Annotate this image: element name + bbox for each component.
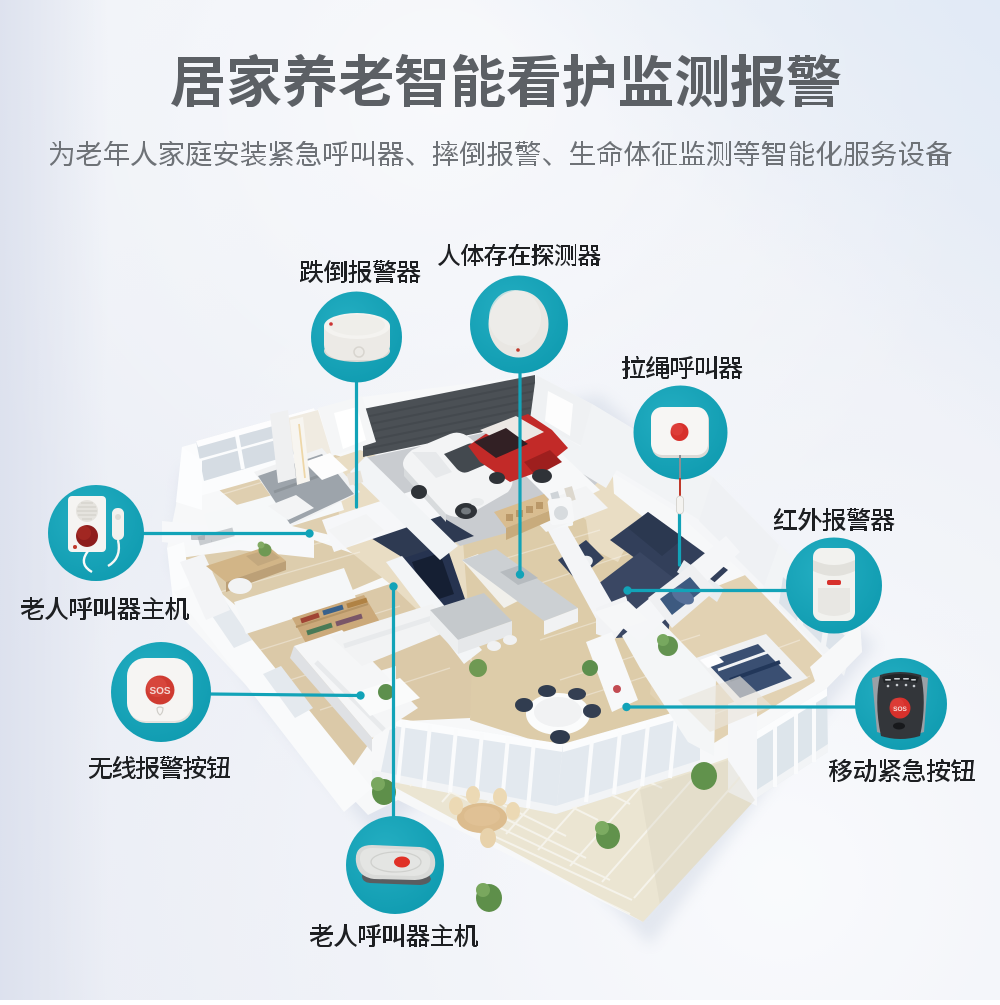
svg-text:SOS: SOS: [893, 706, 907, 713]
svg-text:SOS: SOS: [149, 686, 170, 697]
